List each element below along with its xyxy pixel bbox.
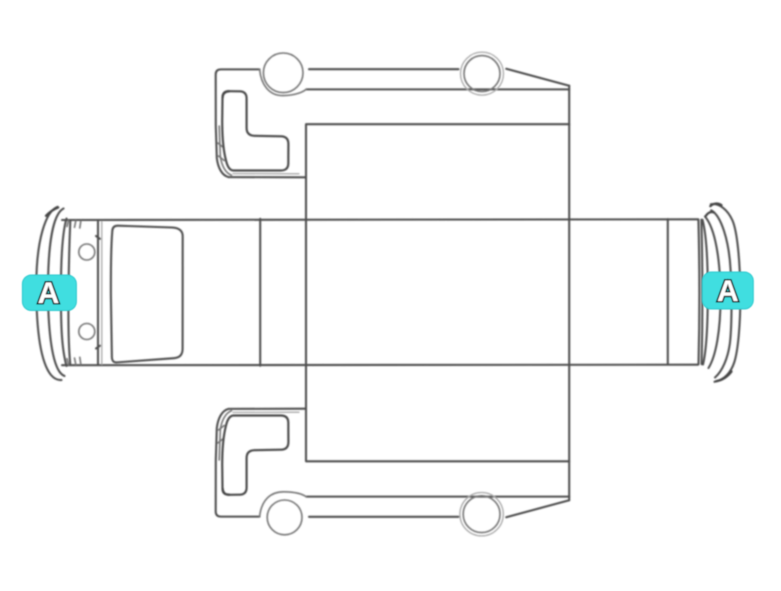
- svg-text:A: A: [38, 277, 60, 310]
- svg-text:A: A: [717, 275, 739, 308]
